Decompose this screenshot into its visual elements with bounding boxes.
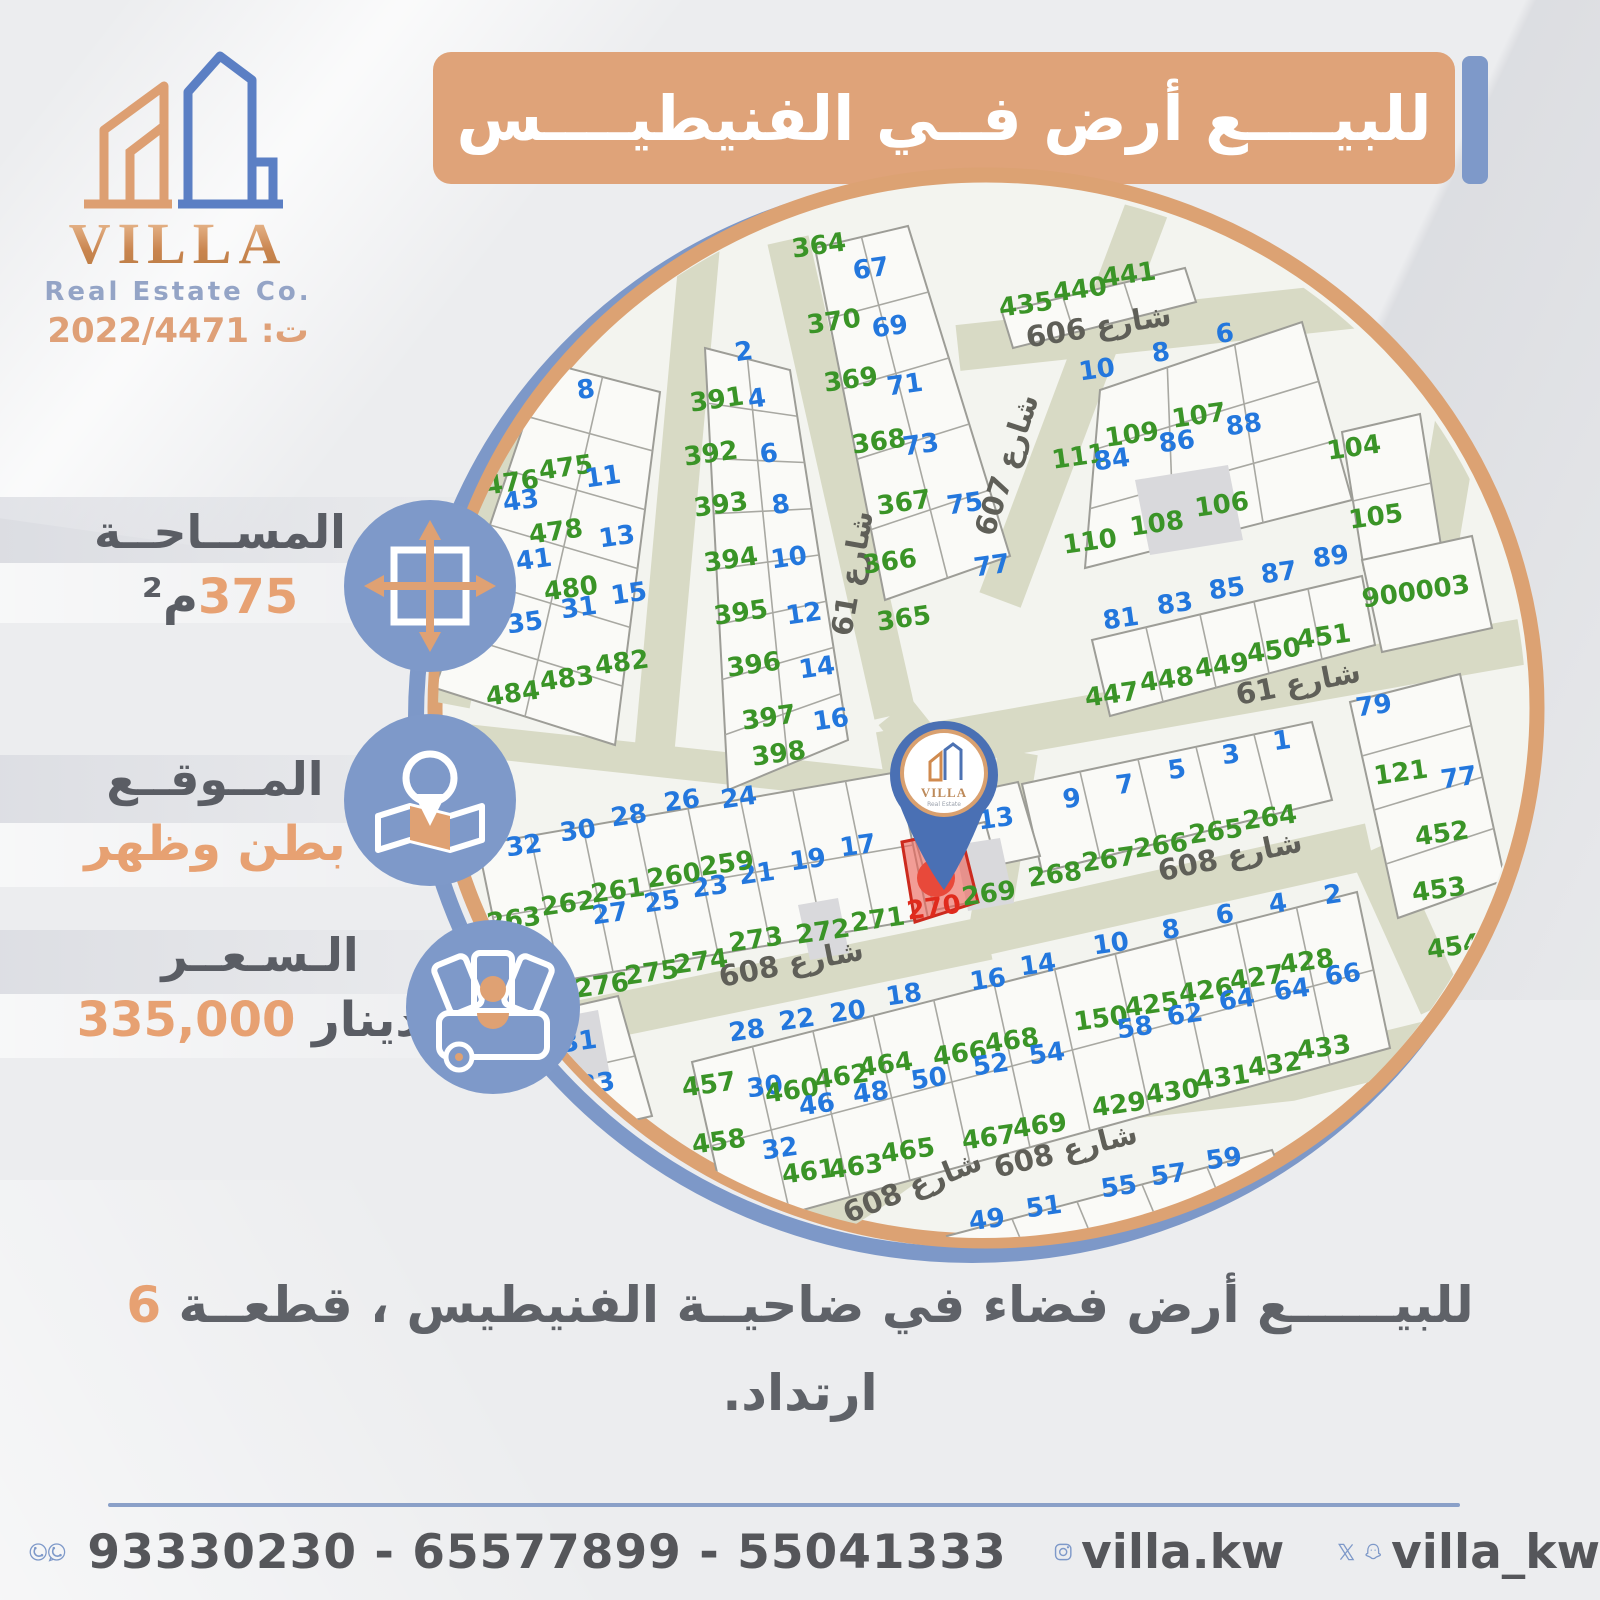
plot-label: 83 — [1155, 587, 1195, 622]
snapchat-icon[interactable] — [1363, 1520, 1383, 1584]
plot-label: 12 — [784, 597, 824, 632]
location-label: المــوقــع — [80, 752, 350, 806]
plot-label: 13 — [597, 520, 637, 555]
plot-label: 86 — [1157, 425, 1197, 460]
plot-label: 62 — [1165, 998, 1205, 1033]
plot-label: 54 — [1027, 1037, 1067, 1072]
area-info: المســاحــة 375م² — [90, 505, 350, 625]
plot-label: 30 — [558, 814, 598, 849]
real-estate-flyer: VILLA Real Estate Co. ت: 2022/4471 للبيـ… — [0, 0, 1600, 1600]
phone-icon — [30, 1544, 46, 1560]
plot-label: 87 — [1259, 556, 1299, 591]
plot-label: 19 — [788, 843, 828, 878]
instagram-icon[interactable] — [1053, 1520, 1073, 1584]
plot-label: 75 — [945, 487, 985, 522]
plot-label: 16 — [968, 963, 1008, 998]
plot-label: 20 — [828, 995, 868, 1030]
plot-label: 58 — [1115, 1011, 1155, 1046]
plot-label: 71 — [885, 368, 925, 403]
plot-label: 49 — [967, 1203, 1007, 1238]
phone-numbers[interactable]: 93330230 - 65577899 - 55041333 — [87, 1525, 1006, 1580]
plot-label: 88 — [1224, 408, 1264, 443]
plot-label: 17 — [838, 829, 878, 864]
plot-label: 69 — [870, 310, 910, 345]
plot-label: 14 — [1018, 948, 1058, 983]
plot-label: 73 — [901, 428, 941, 463]
price-value: 335,000 — [77, 992, 296, 1048]
location-info: المــوقــع بطن وظهر — [80, 752, 350, 872]
plot-label: 28 — [727, 1014, 767, 1049]
pin-logo-text: VILLA — [921, 785, 967, 800]
area-icon — [342, 498, 518, 674]
description-highlight: 6 — [126, 1276, 161, 1334]
plot-label: 41 — [514, 543, 554, 578]
footer-divider — [108, 1503, 1460, 1507]
plot-label: 14 — [797, 651, 837, 686]
plot-label: 64 — [1272, 973, 1312, 1008]
footer: 93330230 - 65577899 - 55041333 villa.kw … — [0, 1512, 1600, 1592]
plot-label: 64 — [1217, 983, 1257, 1018]
description-line2: ارتداد. — [722, 1364, 877, 1422]
plot-label: 18 — [884, 978, 924, 1013]
plot-label: 10 — [769, 541, 809, 576]
plot-label: 79 — [1354, 689, 1394, 724]
plot-label: 77 — [1439, 761, 1479, 796]
description-text: للبيــــــع أرض فضاء في ضاحيــة الفنيطيس… — [179, 1276, 1474, 1334]
area-unit: م² — [142, 569, 198, 625]
plot-label: 26 — [662, 784, 702, 819]
plot-label: 81 — [1101, 602, 1141, 637]
price-info: الـسـعــر دينار 335,000 — [100, 928, 420, 1048]
x-twitter-icon[interactable] — [1336, 1520, 1356, 1584]
plot-label: 67 — [851, 252, 891, 287]
social-handle[interactable]: villa_kw — [1391, 1525, 1600, 1580]
plot-label: 55 — [1099, 1170, 1139, 1205]
phone-whatsapp-icons — [28, 1517, 69, 1587]
plot-label: 10 — [1091, 927, 1131, 962]
plot-label: 66 — [1323, 958, 1363, 993]
plot-label: 85 — [1207, 572, 1247, 607]
plot-label: 22 — [777, 1003, 817, 1038]
plot-label: 10 — [1077, 353, 1117, 388]
area-label: المســاحــة — [90, 505, 350, 559]
location-icon — [342, 712, 518, 888]
location-value: بطن وظهر — [80, 816, 350, 872]
plot-label: 84 — [1092, 443, 1132, 478]
plot-label: 24 — [719, 781, 759, 816]
pin-logo-subtext: Real Estate — [927, 801, 961, 808]
plot-label: 51 — [1024, 1190, 1064, 1225]
plot-label: 59 — [1204, 1142, 1244, 1177]
area-value: 375 — [198, 569, 298, 625]
plot-label: 57 — [1149, 1158, 1189, 1193]
plot-label: 89 — [1311, 540, 1351, 575]
description: للبيــــــع أرض فضاء في ضاحيــة الفنيطيس… — [80, 1262, 1520, 1437]
plot-label: 77 — [972, 549, 1012, 584]
plot-label: 28 — [609, 799, 649, 834]
plot-label: 16 — [811, 703, 851, 738]
instagram-handle[interactable]: villa.kw — [1081, 1525, 1284, 1580]
plot-label: 11 — [583, 460, 623, 495]
plot-label: 15 — [609, 577, 649, 612]
price-label: الـسـعــر — [100, 928, 420, 982]
price-icon — [404, 918, 582, 1096]
plot-label: 31 — [559, 591, 599, 626]
